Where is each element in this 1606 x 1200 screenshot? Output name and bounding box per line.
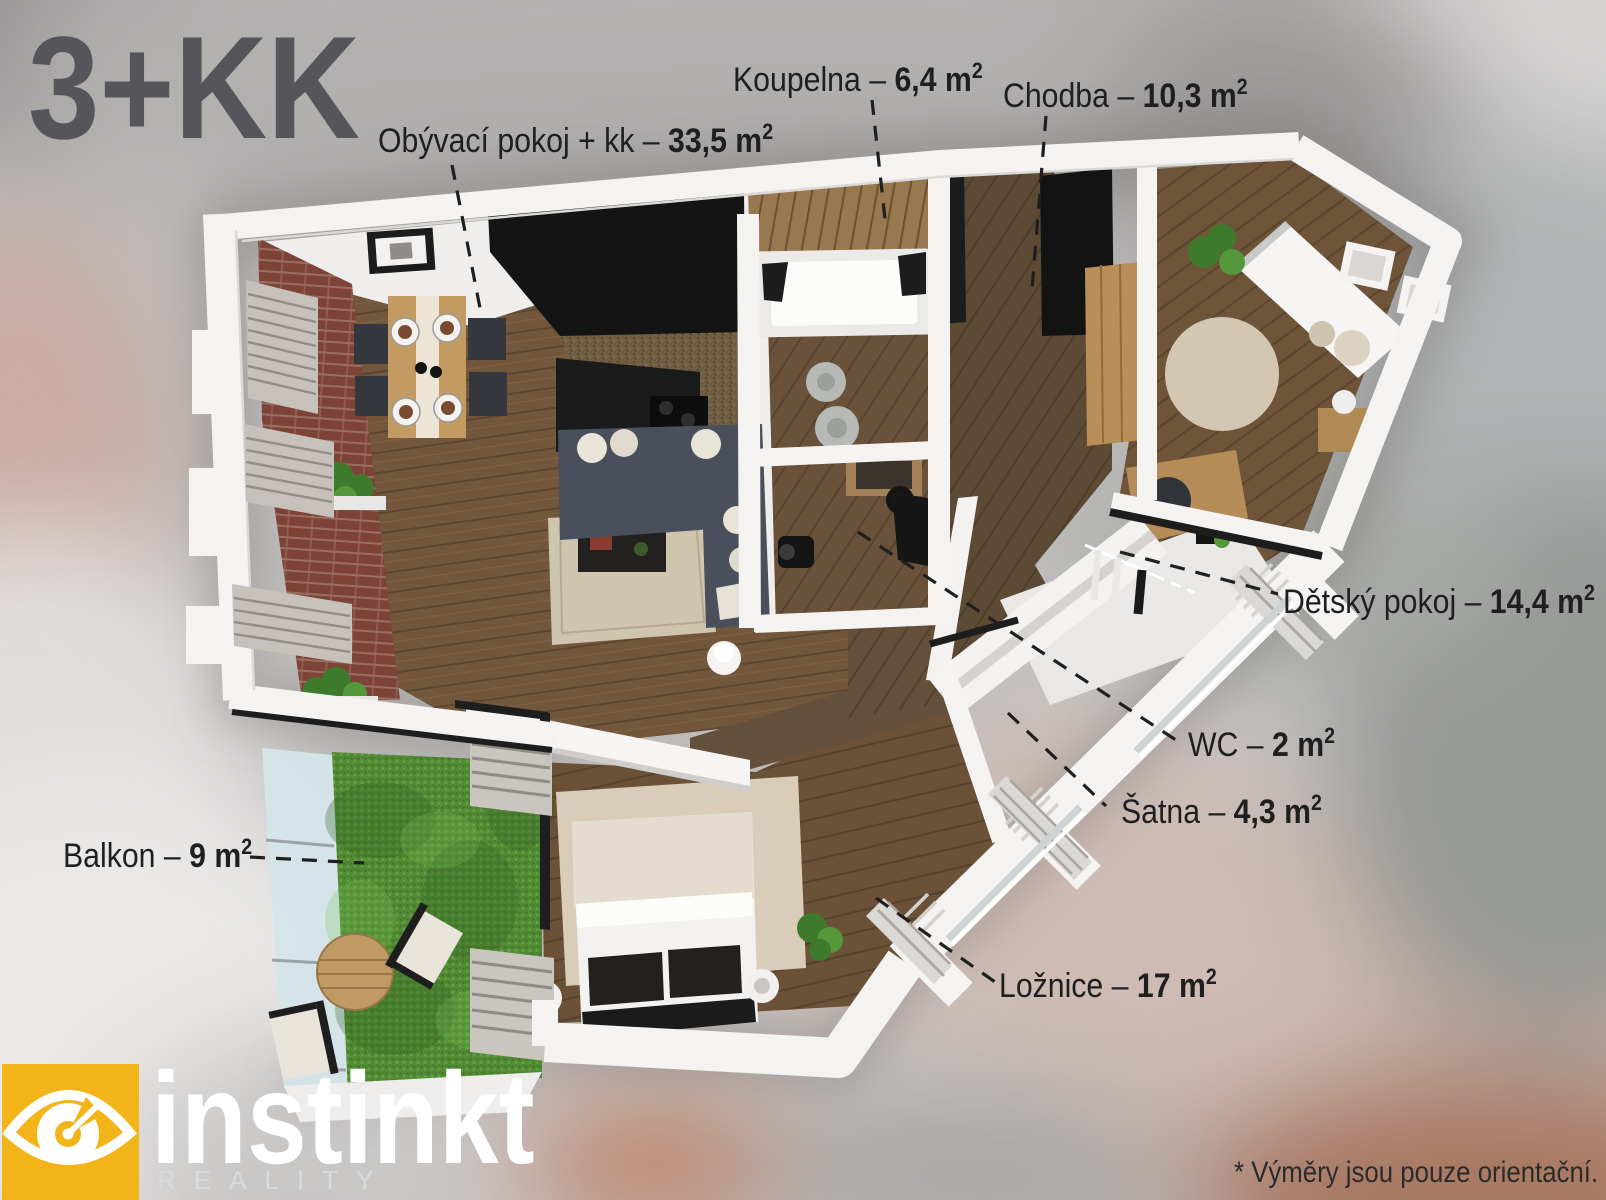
- svg-text:Koupelna – 6,4 m2: Koupelna – 6,4 m2: [733, 59, 983, 98]
- svg-text:Obývací pokoj + kk – 33,5 m2: Obývací pokoj + kk – 33,5 m2: [378, 120, 773, 159]
- svg-text:Chodba – 10,3 m2: Chodba – 10,3 m2: [1003, 75, 1248, 114]
- svg-text:Dětský pokoj – 14,4 m2: Dětský pokoj – 14,4 m2: [1283, 581, 1595, 620]
- svg-text:WC – 2 m2: WC – 2 m2: [1188, 724, 1335, 763]
- svg-text:Balkon – 9 m2: Balkon – 9 m2: [63, 835, 252, 874]
- svg-text:Šatna – 4,3 m2: Šatna – 4,3 m2: [1121, 791, 1322, 830]
- svg-text:3+KK: 3+KK: [28, 7, 360, 169]
- svg-text:Ložnice – 17 m2: Ložnice – 17 m2: [999, 965, 1217, 1004]
- svg-text:* Výměry jsou pouze orientační: * Výměry jsou pouze orientační.: [1234, 1155, 1598, 1188]
- svg-text:REALITY: REALITY: [157, 1165, 391, 1195]
